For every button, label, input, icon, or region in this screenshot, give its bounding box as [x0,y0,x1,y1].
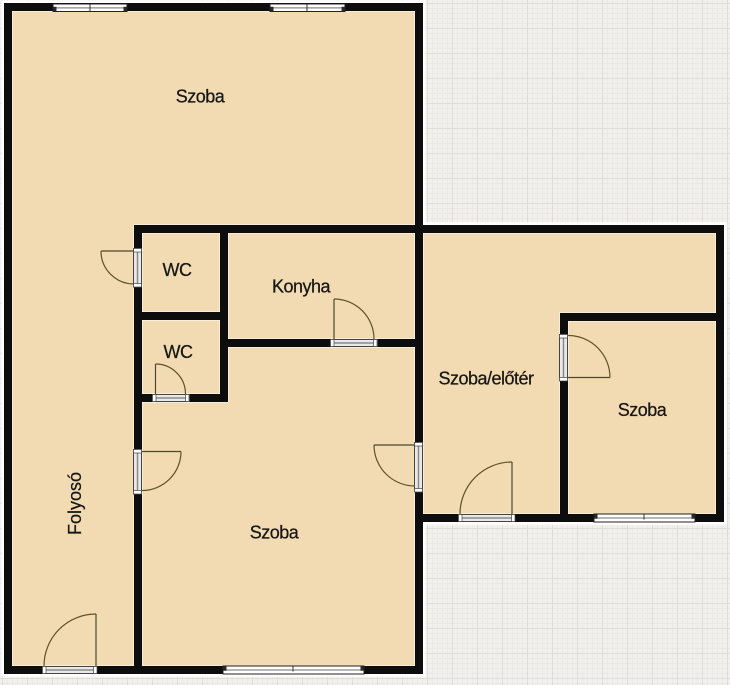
svg-text:Konyha: Konyha [272,277,332,297]
svg-text:WC: WC [163,260,192,280]
svg-text:Szoba/előtér: Szoba/előtér [438,369,534,389]
svg-text:Folyosó: Folyosó [65,472,85,535]
svg-text:Szoba: Szoba [250,523,300,543]
svg-text:Szoba: Szoba [618,400,668,420]
svg-text:WC: WC [164,342,193,362]
svg-text:Szoba: Szoba [176,87,226,107]
